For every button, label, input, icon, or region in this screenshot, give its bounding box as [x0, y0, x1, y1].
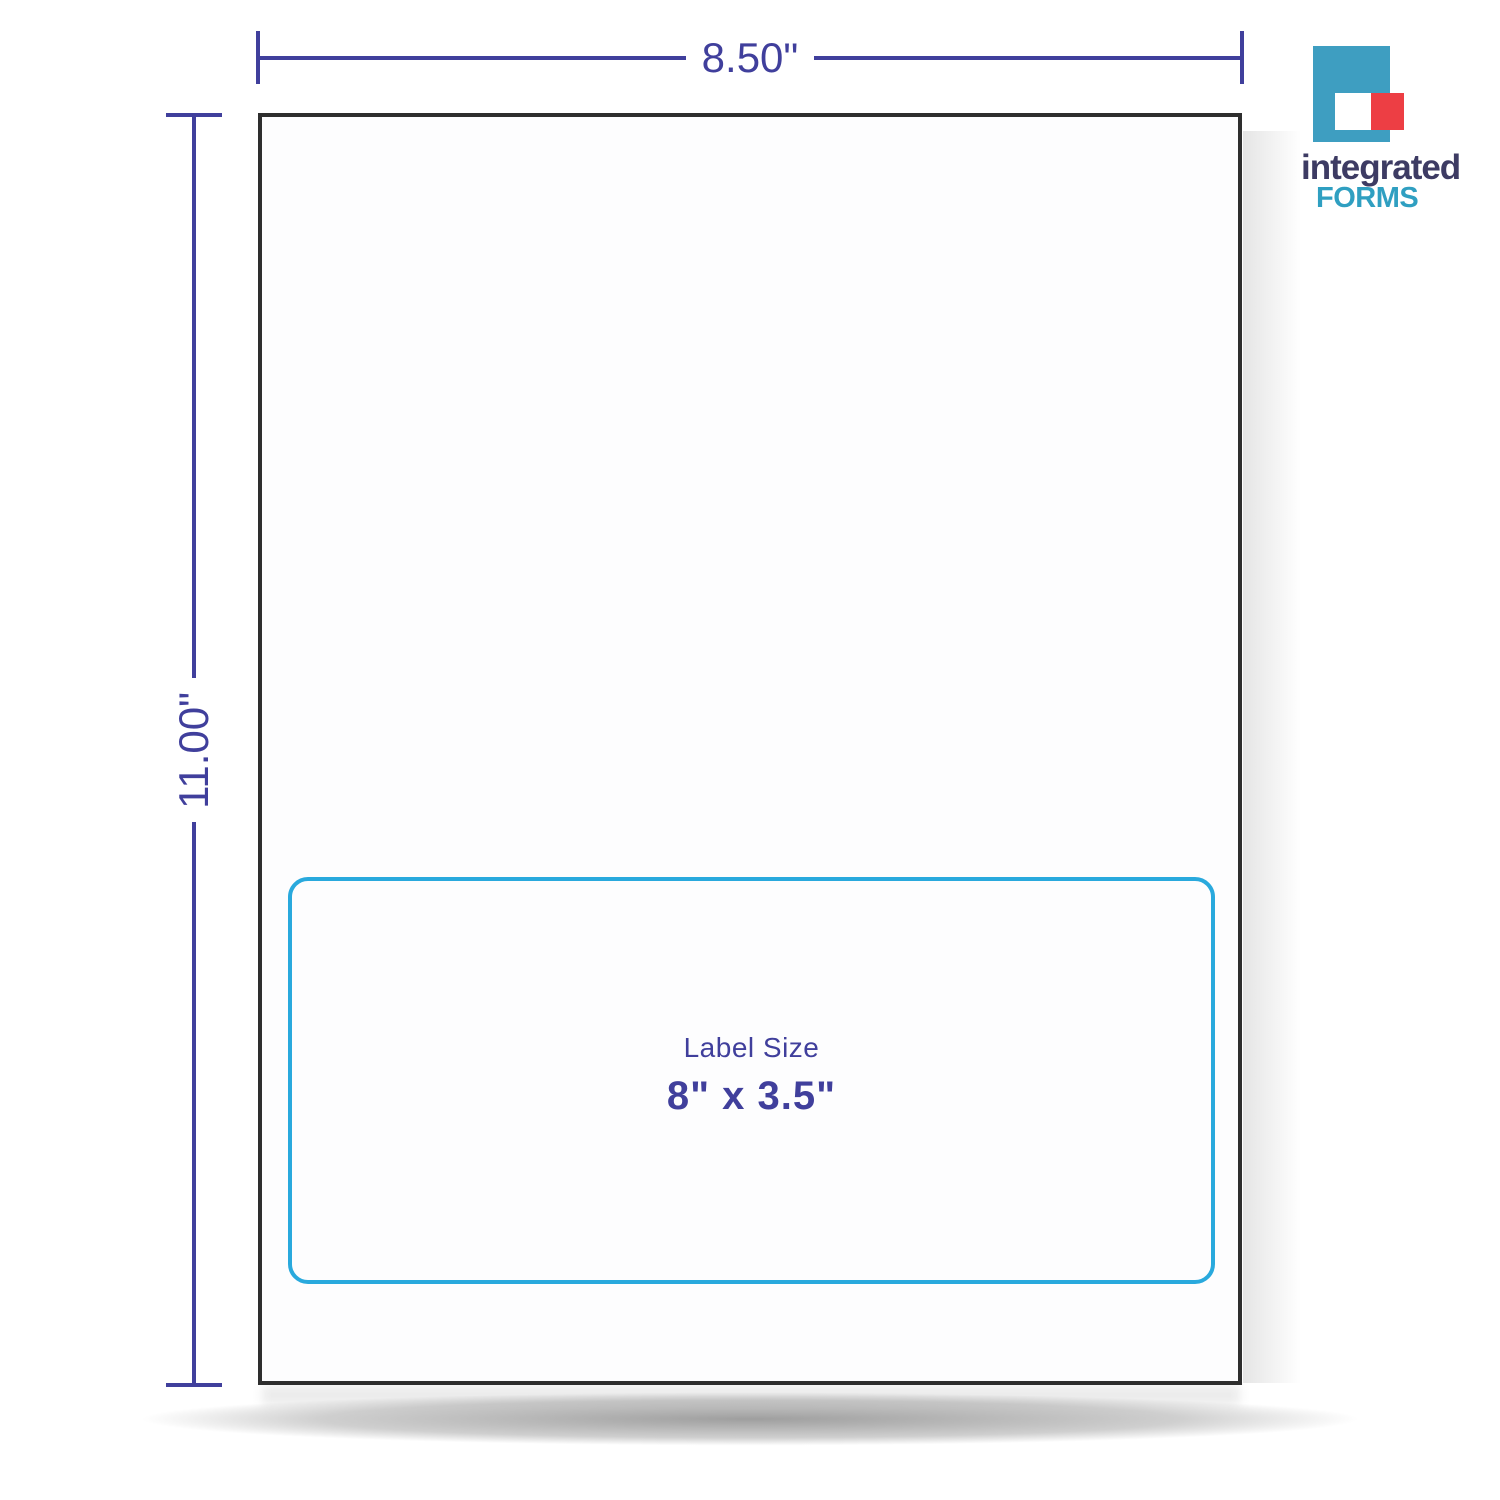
height-dimension-line-bottom — [192, 822, 196, 1383]
width-dimension-label: 8.50" — [702, 34, 799, 82]
height-dimension-label: 11.00" — [170, 692, 218, 809]
width-dimension-line-right — [814, 56, 1240, 60]
label-size-title: Label Size — [684, 1032, 820, 1064]
sheet-shadow-right — [1243, 131, 1301, 1383]
width-dimension-right-cap — [1240, 31, 1244, 84]
height-dimension-bottom-cap — [166, 1383, 222, 1387]
height-dimension: 11.00" — [166, 113, 222, 1387]
width-dimension: 8.50" — [256, 31, 1244, 84]
width-dimension-line-left — [260, 56, 686, 60]
height-dimension-line-top — [192, 117, 196, 678]
logo-white-square-icon — [1335, 93, 1371, 130]
label-area: Label Size 8" x 3.5" — [288, 877, 1215, 1284]
label-size-value: 8" x 3.5" — [667, 1074, 836, 1119]
logo-red-square-icon — [1371, 93, 1404, 130]
logo-text-forms: FORMS — [1316, 182, 1418, 215]
sheet-shadow-bottom — [0, 1381, 1500, 1476]
product-diagram: Label Size 8" x 3.5" 8.50" 11.00" integr… — [0, 0, 1500, 1500]
